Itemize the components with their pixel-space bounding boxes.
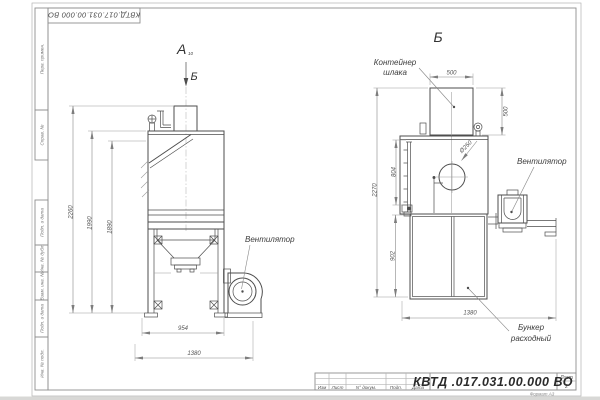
stamp-podp-data-1: Подп. и дата	[40, 208, 45, 237]
view-a: А 10 Б	[69, 41, 296, 361]
dim-954: 954	[142, 318, 224, 336]
side-stamp-upper: Перв. примен. Справ. №	[35, 8, 48, 160]
col-izm: Изм	[318, 385, 327, 390]
fan-rear	[488, 190, 556, 236]
dim-2260: 2260	[69, 106, 174, 313]
bunker-label-1: Бункер	[518, 323, 545, 332]
stamp-perv-primen: Перв. примен.	[40, 44, 45, 75]
stub	[420, 123, 426, 134]
stamp-sprav-n: Справ. №	[40, 125, 45, 146]
container-label-1: Контейнер	[374, 58, 417, 67]
dim-500-right: 500	[476, 88, 510, 135]
dim-500-right-text: 500	[504, 106, 510, 117]
dim-1890-text: 1890	[108, 220, 114, 234]
fan-side	[224, 269, 263, 318]
bunker-callout: Бункер расходный	[467, 287, 552, 343]
dim-902: 902	[391, 215, 410, 297]
dim-902-text: 902	[391, 250, 397, 261]
dim-diameter-250: Ø250	[458, 140, 477, 161]
stamp-inv-podl: Инв. № подл.	[40, 349, 45, 378]
valve	[148, 115, 156, 131]
drawing-sheet: КВТД.017.031.00.000 ВО Перв. примен. Спр…	[0, 0, 600, 400]
dim-1380-right: 1380	[402, 239, 556, 321]
view-a-label: А	[176, 41, 186, 57]
format-note: Формат А3	[530, 392, 555, 397]
view-b-direction-arrow: Б	[184, 62, 198, 231]
stamp-vzam-inv: Взам. инв. №	[40, 272, 45, 300]
bunker	[410, 214, 487, 299]
engineering-drawing: КВТД.017.031.00.000 ВО Перв. примен. Спр…	[0, 0, 600, 400]
dim-1380-right-text: 1380	[463, 311, 477, 317]
dim-804-text: 804	[392, 166, 398, 177]
title-block: Изм Лист N° докум. Подп. Дата КВТД .017.…	[315, 373, 576, 397]
col-list: Лист	[331, 385, 344, 390]
container-callout: Контейнер шлака	[374, 58, 455, 108]
inlet-bracket	[157, 111, 171, 128]
ladder	[402, 142, 412, 216]
view-b-arrow-label: Б	[191, 71, 198, 83]
dim-500-top-text: 500	[446, 71, 457, 77]
dim-500-top: 500	[430, 71, 473, 86]
body-side	[141, 131, 224, 222]
fan-callout-right: Вентилятор	[510, 157, 567, 213]
view-a-label-sub: 10	[188, 51, 194, 56]
container-label-2: шлака	[383, 68, 407, 77]
top-designation-box: КВТД.017.031.00.000 ВО	[48, 8, 140, 23]
top-designation-text: КВТД.017.031.00.000 ВО	[48, 11, 140, 20]
fan-label-left: Вентилятор	[245, 235, 295, 244]
dim-1890: 1890	[108, 141, 147, 313]
sheet-number: 2	[564, 384, 568, 390]
stamp-inv-dubl: Инв. № дубл.	[40, 244, 45, 272]
discharge-funnel	[154, 229, 218, 273]
body-front	[400, 136, 488, 214]
fan-callout-left: Вентилятор	[242, 235, 296, 289]
dim-2260-text: 2260	[69, 205, 75, 220]
fan-label-right: Вентилятор	[517, 157, 567, 166]
stamp-podp-data-2: Подп. и дата	[40, 304, 45, 333]
dim-1990: 1990	[88, 131, 147, 313]
side-stamp-lower: Подп. и дата Инв. № дубл. Взам. инв. № П…	[35, 200, 48, 390]
dim-1990-text: 1990	[88, 216, 94, 230]
sheet-label: Лист	[559, 375, 573, 381]
support-frame	[145, 222, 228, 317]
dim-2270-text: 2270	[373, 183, 379, 198]
dim-1380-left: 1380	[135, 321, 253, 361]
dim-1380-left-text: 1380	[187, 351, 201, 357]
col-dokum: N° докум.	[356, 385, 376, 390]
dim-954-text: 954	[178, 326, 189, 332]
chimney	[174, 106, 197, 131]
bunker-label-2: расходный	[510, 334, 552, 343]
view-b-label: Б	[433, 29, 442, 45]
col-podp: Подп.	[390, 385, 402, 390]
designation: КВТД .017.031.00.000 ВО	[413, 375, 573, 389]
view-b: Б	[373, 29, 568, 343]
gauge	[474, 123, 482, 136]
